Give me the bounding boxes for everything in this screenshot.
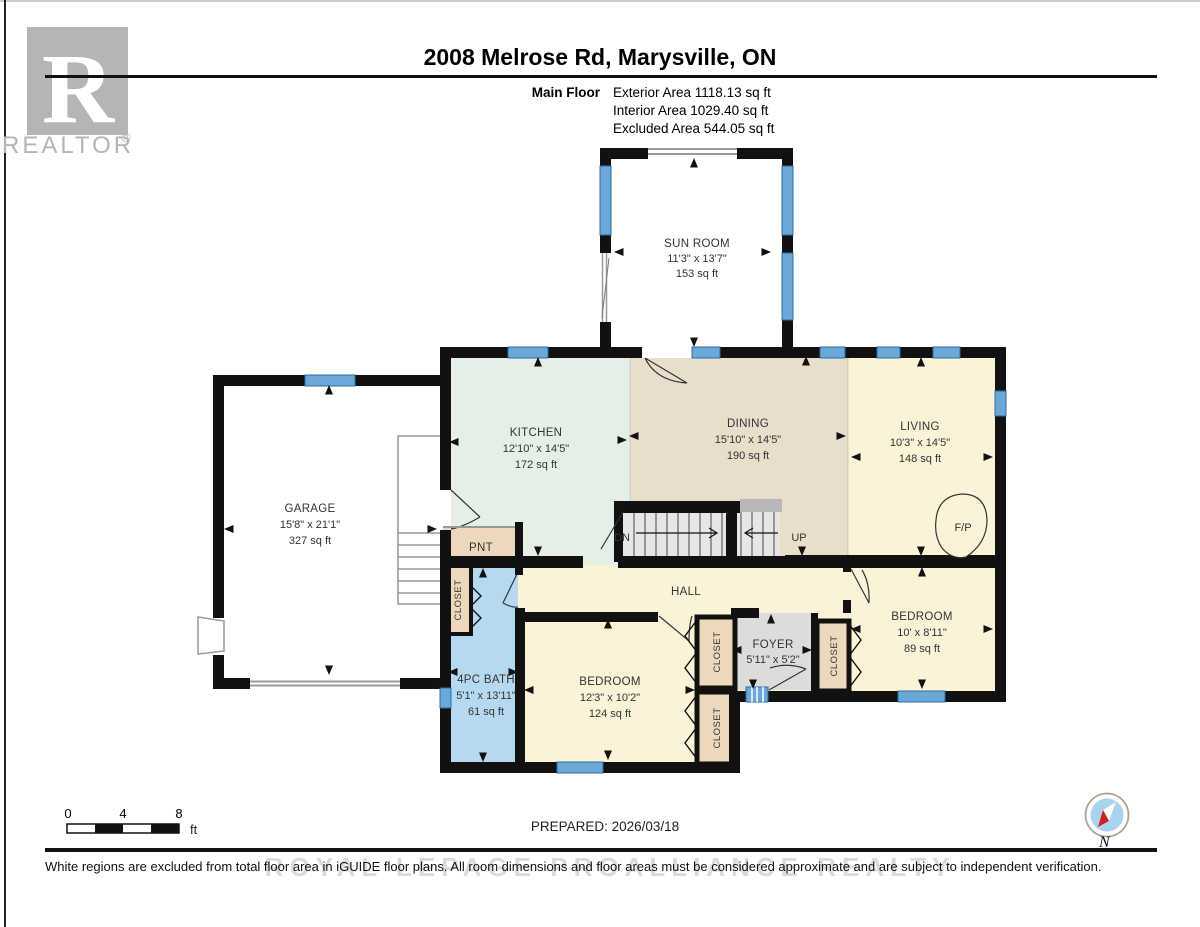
svg-text:DINING: DINING bbox=[727, 418, 769, 430]
garage-service-door bbox=[198, 617, 224, 654]
svg-text:327 sq ft: 327 sq ft bbox=[289, 535, 331, 547]
svg-text:124 sq ft: 124 sq ft bbox=[589, 708, 631, 720]
label-down: DN bbox=[614, 532, 630, 544]
footer: ROYAL LEPAGE PROALLIANCE REALTY White re… bbox=[45, 848, 1157, 882]
window bbox=[782, 253, 793, 320]
window bbox=[508, 347, 548, 358]
window bbox=[995, 391, 1006, 416]
window bbox=[933, 347, 960, 358]
window bbox=[557, 762, 603, 773]
label-closet-c: CLOSET bbox=[829, 635, 840, 676]
svg-text:KITCHEN: KITCHEN bbox=[510, 427, 563, 439]
svg-text:153 sq ft: 153 sq ft bbox=[676, 268, 718, 280]
label-pantry: PNT bbox=[469, 542, 493, 554]
label-hall: HALL bbox=[671, 586, 701, 598]
window bbox=[877, 347, 900, 358]
scale-unit: ft bbox=[190, 822, 198, 837]
label-closet-bath: CLOSET bbox=[453, 579, 464, 620]
svg-text:5'1" x 13'11": 5'1" x 13'11" bbox=[456, 690, 516, 702]
svg-text:172 sq ft: 172 sq ft bbox=[515, 459, 557, 471]
svg-text:GARAGE: GARAGE bbox=[284, 503, 335, 515]
scale-8: 8 bbox=[175, 806, 182, 821]
svg-text:12'3" x 10'2": 12'3" x 10'2" bbox=[580, 692, 640, 704]
window bbox=[782, 166, 793, 235]
realtor-logo-letter: R bbox=[42, 33, 116, 144]
window bbox=[820, 347, 845, 358]
sunroom-top-opening bbox=[648, 146, 737, 159]
label-up: UP bbox=[791, 532, 806, 544]
page-top-border bbox=[0, 0, 1200, 2]
svg-text:10'3" x 14'5": 10'3" x 14'5" bbox=[890, 437, 950, 449]
label-closet-b: CLOSET bbox=[712, 707, 723, 748]
header: 2008 Melrose Rd, Marysville, ON Main Flo… bbox=[45, 44, 1157, 136]
svg-text:LIVING: LIVING bbox=[900, 421, 940, 433]
window bbox=[600, 166, 611, 235]
excluded-area: Excluded Area 544.05 sq ft bbox=[613, 121, 775, 136]
floor-label: Main Floor bbox=[532, 85, 601, 100]
window bbox=[692, 347, 720, 358]
compass-icon: N bbox=[1086, 794, 1129, 852]
room-foyer bbox=[731, 613, 813, 690]
svg-text:89 sq ft: 89 sq ft bbox=[904, 643, 940, 655]
svg-text:4PC BATH: 4PC BATH bbox=[457, 674, 515, 686]
svg-text:61 sq ft: 61 sq ft bbox=[468, 706, 504, 718]
window bbox=[305, 375, 355, 386]
disclaimer: White regions are excluded from total fl… bbox=[45, 859, 1101, 874]
interior-area: Interior Area 1029.40 sq ft bbox=[613, 103, 769, 118]
fireplace-label: F/P bbox=[954, 522, 971, 534]
floor-plan-page: R REALTOR ® 2008 Melrose Rd, Marysville,… bbox=[0, 0, 1200, 927]
window bbox=[898, 691, 945, 702]
realtor-logo: R REALTOR ® bbox=[2, 27, 134, 159]
svg-text:SUN ROOM: SUN ROOM bbox=[664, 238, 730, 250]
svg-text:190 sq ft: 190 sq ft bbox=[727, 450, 769, 462]
svg-text:11'3" x 13'7": 11'3" x 13'7" bbox=[667, 253, 727, 265]
svg-text:FOYER: FOYER bbox=[752, 639, 793, 651]
page-title: 2008 Melrose Rd, Marysville, ON bbox=[424, 44, 777, 70]
exterior-area: Exterior Area 1118.13 sq ft bbox=[613, 85, 771, 100]
scale-0: 0 bbox=[64, 806, 71, 821]
window bbox=[440, 688, 451, 708]
svg-text:BEDROOM: BEDROOM bbox=[579, 676, 641, 688]
header-rule bbox=[45, 75, 1157, 78]
svg-text:148 sq ft: 148 sq ft bbox=[899, 453, 941, 465]
prepared-date: PREPARED: 2026/03/18 bbox=[531, 819, 679, 834]
svg-text:15'8" x 21'1": 15'8" x 21'1" bbox=[280, 519, 340, 531]
realtor-logo-text: REALTOR bbox=[2, 132, 134, 159]
svg-text:5'11" x 5'2": 5'11" x 5'2" bbox=[746, 654, 799, 666]
room-garage bbox=[224, 386, 440, 678]
scale-4: 4 bbox=[119, 806, 126, 821]
stair-landing bbox=[740, 499, 782, 512]
scale-bar: 0 4 8 ft bbox=[64, 806, 197, 837]
svg-text:12'10" x 14'5": 12'10" x 14'5" bbox=[503, 443, 570, 455]
svg-text:BEDROOM: BEDROOM bbox=[891, 611, 953, 623]
label-closet-a: CLOSET bbox=[712, 631, 723, 672]
svg-text:15'10" x 14'5": 15'10" x 14'5" bbox=[715, 434, 782, 446]
svg-text:10' x 8'11": 10' x 8'11" bbox=[897, 627, 947, 639]
registered-mark: ® bbox=[121, 130, 131, 145]
